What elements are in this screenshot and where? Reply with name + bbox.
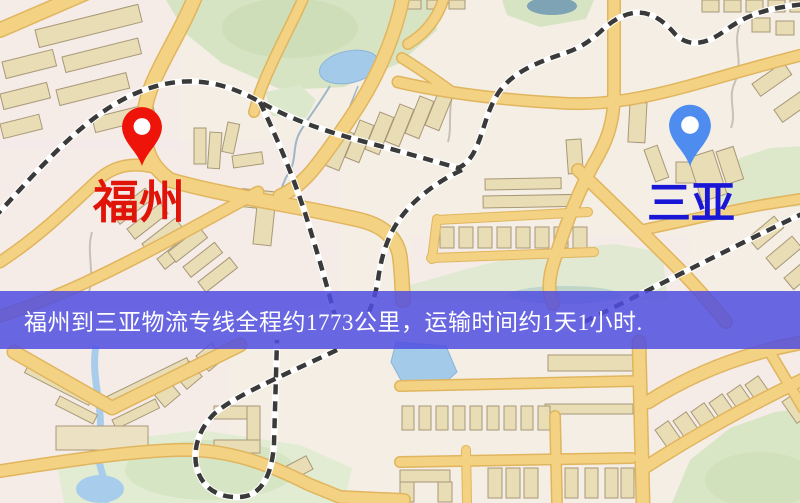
blue-location-pin-icon <box>668 101 712 170</box>
origin-city-label: 福州 <box>83 180 195 226</box>
red-location-pin-icon <box>121 105 163 168</box>
origin-pin <box>121 105 163 168</box>
route-info-banner: 福州到三亚物流专线全程约1773公里，运输时间约1天1小时. <box>0 291 800 349</box>
destination-city-label: 三亚 <box>635 182 747 226</box>
map-image <box>0 0 800 503</box>
logistics-route-map: 福州 三亚 福州到三亚物流专线全程约1773公里，运输时间约1天1小时. <box>0 0 800 503</box>
route-info-text: 福州到三亚物流专线全程约1773公里，运输时间约1天1小时. <box>24 303 643 337</box>
destination-pin <box>668 101 712 170</box>
